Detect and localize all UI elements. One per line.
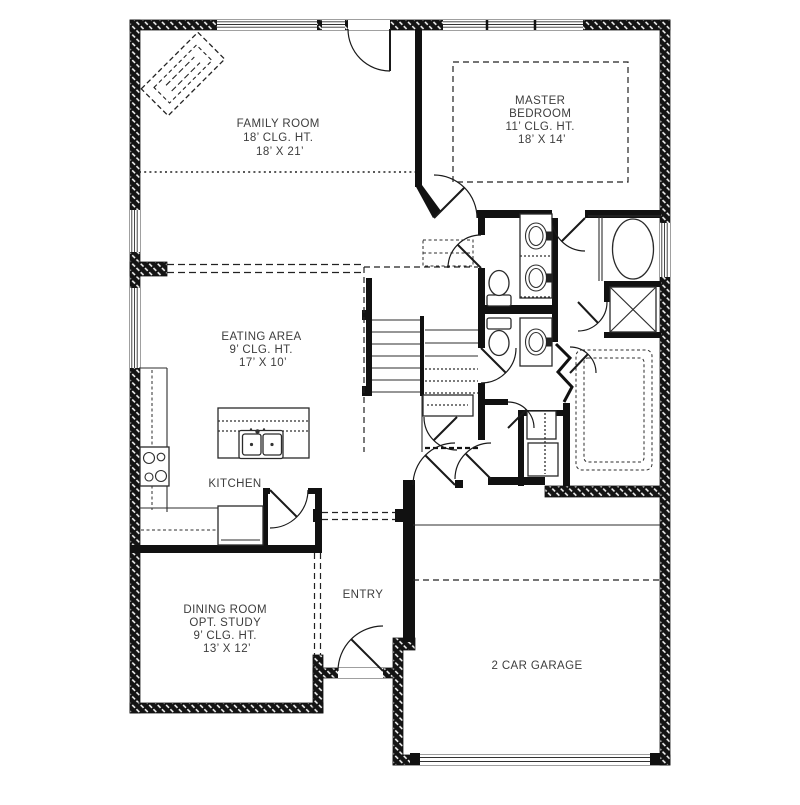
family-room-label: FAMILY ROOM 18’ CLG. HT. 18’ X 21’ [237, 118, 324, 158]
patio-door [348, 29, 390, 71]
corner-fireplace-optional [141, 32, 224, 115]
understair-storage [423, 395, 473, 416]
master-bedroom-windows-top [443, 20, 583, 30]
counter-left [139, 368, 167, 512]
bath-fixtures [487, 214, 661, 476]
kitchen-fixtures [139, 368, 309, 545]
understair-closet-door [424, 417, 457, 450]
kitchen-island [218, 408, 309, 459]
closet-door [570, 347, 596, 373]
ceiling-break-lines [139, 62, 660, 655]
master-bedroom-label: MASTER BEDROOM 11’ CLG. HT. 18’ X 14’ [506, 95, 579, 146]
master-closet-shelving [576, 350, 652, 470]
floor-plan-page: FAMILY ROOM 18’ CLG. HT. 18’ X 21’ MASTE… [0, 0, 800, 800]
patio-door-opening [348, 20, 390, 30]
family-room-window-left [130, 210, 140, 252]
shower-icon [610, 287, 656, 332]
cooktop-icon [140, 447, 169, 486]
tub-icon [588, 216, 661, 281]
tub-window-right [660, 223, 670, 277]
entry-label: ENTRY [343, 589, 384, 601]
toilet-icon [487, 318, 511, 356]
eating-area-label: EATING AREA 9’ CLG. HT. 17’ X 10’ [221, 331, 304, 369]
island-sink-icon [239, 428, 283, 458]
front-door-opening [338, 668, 383, 678]
front-door [338, 626, 383, 671]
laundry-stack [527, 411, 558, 476]
interior-walls [130, 29, 661, 642]
shower-door [578, 302, 607, 331]
range [218, 506, 263, 545]
toilet-icon [487, 271, 511, 307]
hall-bath-vanity [520, 318, 552, 366]
eating-area-window-left [130, 288, 140, 368]
staircase [372, 316, 478, 452]
master-vanity [520, 214, 552, 298]
closet-zigzag-wall [556, 344, 572, 402]
floor-plan-drawing: FAMILY ROOM 18’ CLG. HT. 18’ X 21’ MASTE… [0, 0, 800, 800]
kitchen-label: KITCHEN [208, 478, 261, 490]
dining-room-label: DINING ROOM OPT. STUDY 9’ CLG. HT. 13’ X… [183, 604, 270, 655]
dryer-icon [528, 443, 558, 476]
garage-label: 2 CAR GARAGE [491, 660, 582, 672]
pantry-door [270, 490, 308, 528]
family-room-window-top [217, 20, 345, 30]
